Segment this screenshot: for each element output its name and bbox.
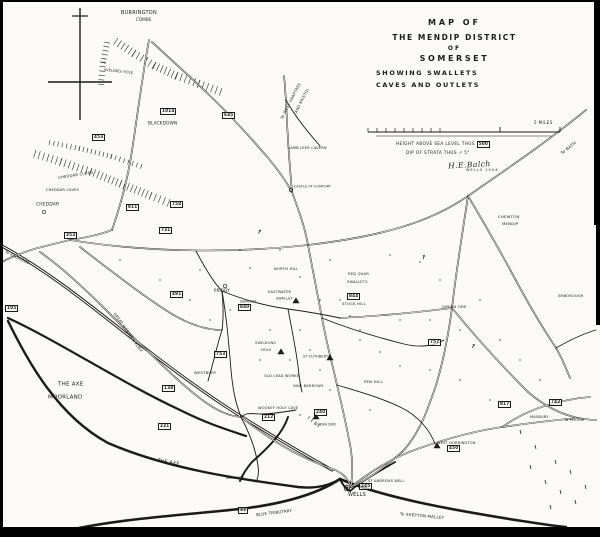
height-box: 844 <box>347 293 360 300</box>
legend-dip-note: DIP OF STRATA THUS <box>406 150 457 155</box>
height-box: 1014 <box>160 108 176 115</box>
height-box: 758 <box>170 201 183 208</box>
map-title-line: MAP OF <box>362 18 547 27</box>
scale-bar-label: 5 MILES <box>534 120 553 125</box>
map-label: SWILDONS <box>255 341 276 345</box>
map-label: SWALLET <box>276 297 293 301</box>
map-label: MOORLAND <box>48 394 83 400</box>
map-label: ST ANDREWS WELL <box>368 479 405 483</box>
height-box: 245 <box>359 483 372 490</box>
legend-height-line: HEIGHT ABOVE SEA LEVEL THUS 500 <box>396 141 576 148</box>
map-label: SWALLETS <box>347 280 368 284</box>
height-box: 453 <box>92 134 105 141</box>
map-label: To FROME <box>564 418 585 422</box>
map-title-line: SOMERSET <box>362 54 547 63</box>
map-label: GREEN ORE <box>442 305 467 309</box>
height-box: 491 <box>170 291 183 298</box>
map-label: WOOKEY <box>226 476 244 480</box>
height-box: 105 <box>5 305 18 312</box>
map-label: EMBOROUGH <box>558 294 584 298</box>
legend-height-note: HEIGHT ABOVE SEA LEVEL THUS <box>396 141 475 146</box>
map-label: COMBE <box>136 18 152 22</box>
scale-bar <box>368 127 560 136</box>
height-box: 753 <box>214 351 227 358</box>
map-label: MASBURY <box>530 415 549 419</box>
map-title-line: THE MENDIP DISTRICT <box>362 33 547 42</box>
height-box: 742 <box>549 399 562 406</box>
north-cross-icon <box>48 8 112 120</box>
map-title-line: CAVES AND OUTLETS <box>362 81 547 89</box>
map-label: PEN HILL <box>364 380 383 384</box>
map-label: CHEDDAR CAVES <box>46 188 79 192</box>
height-box: 212 <box>262 414 275 421</box>
map-title-line: SHOWING SWALLETS <box>362 69 547 77</box>
height-box: 635 <box>222 112 235 119</box>
map-title-block: MAP OFTHE MENDIP DISTRICTOFSOMERSETSHOWI… <box>362 18 547 89</box>
height-box: 450 <box>447 445 460 452</box>
map-label: BLACKDOWN <box>148 121 177 126</box>
map-label: STOCK HILL <box>342 302 366 306</box>
map-label: PRIDDY <box>214 289 230 293</box>
map-label: CHEDDAR <box>36 202 59 207</box>
height-box: 840 <box>238 304 251 311</box>
map-page: MAP OFTHE MENDIP DISTRICTOFSOMERSETSHOWI… <box>0 0 600 537</box>
map-title-line: OF <box>362 45 547 52</box>
map-label: NORTH HILL <box>274 267 299 271</box>
map-label: RED QUAR <box>348 272 369 276</box>
height-box: 353 <box>64 232 77 239</box>
map-label: HOLE <box>261 348 271 352</box>
map-label: LAMB LEER CAVERN <box>288 146 327 150</box>
map-label: WELLS <box>348 492 366 498</box>
height-box: 811 <box>126 204 139 211</box>
map-legend: HEIGHT ABOVE SEA LEVEL THUS 500 DIP OF S… <box>396 141 576 172</box>
height-box: 731 <box>159 227 172 234</box>
map-label: OLD LEAD WORKS <box>264 374 299 378</box>
height-box: 231 <box>158 423 171 430</box>
height-box: 138 <box>162 385 175 392</box>
height-box: 817 <box>498 401 511 408</box>
height-box: 240 <box>314 409 327 416</box>
rivers-layer <box>8 318 566 529</box>
map-label: WESTBURY <box>194 371 216 375</box>
map-label: EASTWATER <box>268 290 291 294</box>
map-label: THE AXE <box>58 381 83 387</box>
legend-height-sample-box: 500 <box>477 141 490 148</box>
map-label: NINE BARROWS <box>293 384 323 388</box>
map-label: HYENA DEN <box>315 423 336 427</box>
map-label: ST CUTHBERTS <box>303 355 330 359</box>
dip-arrow-icon: ↗ <box>459 150 463 155</box>
railway-line <box>2 246 332 470</box>
height-box: 33 <box>238 507 248 514</box>
legend-dip-sample: 5° <box>464 150 470 155</box>
map-label: MENDIP <box>502 222 518 226</box>
legend-dip-line: DIP OF STRATA THUS ↗ 5° <box>396 150 576 155</box>
height-box: 757 <box>428 339 441 346</box>
map-label: BURRINGTON <box>121 10 157 16</box>
map-label: WOOKEY HOLE CAVE <box>258 406 298 410</box>
map-label: CASTLE OF COMFORT <box>294 185 331 189</box>
map-label: CHEWTON <box>498 215 520 219</box>
